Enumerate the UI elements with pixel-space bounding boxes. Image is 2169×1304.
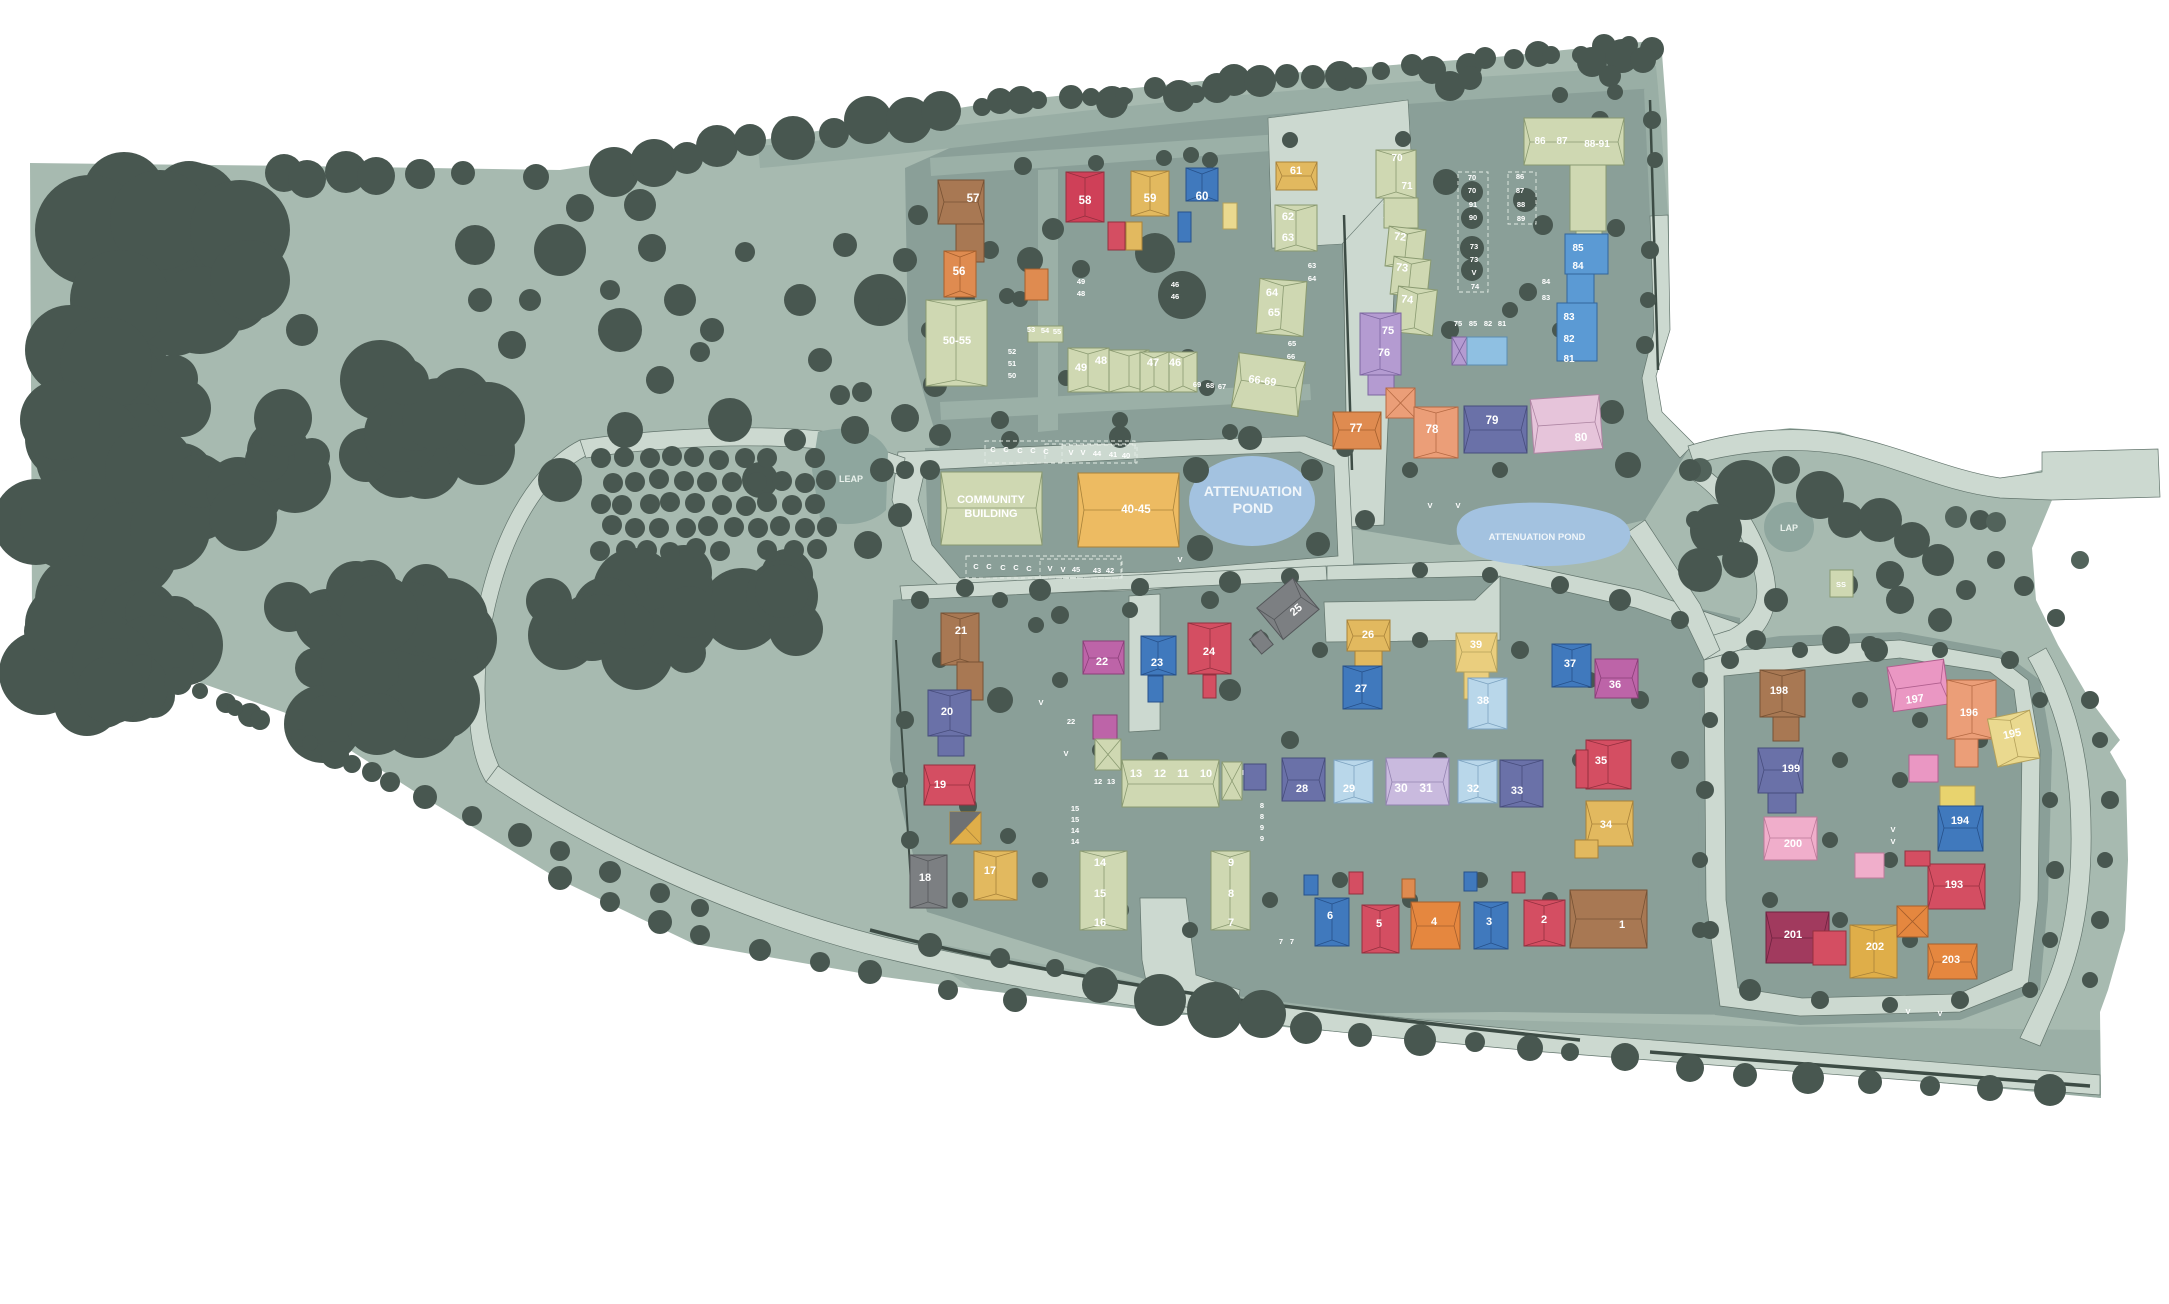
- svg-text:V: V: [1038, 698, 1043, 707]
- svg-text:8: 8: [1228, 888, 1234, 900]
- svg-text:C: C: [1026, 564, 1032, 573]
- svg-text:53: 53: [1027, 325, 1035, 334]
- svg-text:LEAP: LEAP: [839, 474, 863, 484]
- svg-text:COMMUNITY: COMMUNITY: [957, 494, 1025, 506]
- svg-text:78: 78: [1426, 424, 1439, 436]
- svg-text:36: 36: [1609, 679, 1621, 691]
- svg-text:70: 70: [1468, 173, 1476, 182]
- svg-text:V: V: [1427, 501, 1432, 510]
- svg-text:79: 79: [1486, 415, 1499, 427]
- svg-text:30: 30: [1394, 781, 1408, 795]
- svg-text:65: 65: [1268, 307, 1280, 319]
- svg-text:V: V: [1060, 565, 1065, 574]
- svg-text:V: V: [1177, 555, 1182, 564]
- svg-text:34: 34: [1600, 819, 1613, 831]
- svg-text:63: 63: [1282, 232, 1294, 244]
- svg-text:62: 62: [1282, 211, 1294, 223]
- svg-text:20: 20: [941, 706, 953, 718]
- svg-text:7: 7: [1228, 917, 1234, 929]
- svg-text:POND: POND: [1233, 500, 1273, 516]
- svg-text:28: 28: [1296, 783, 1308, 795]
- svg-text:C: C: [1000, 563, 1006, 572]
- svg-text:73: 73: [1470, 255, 1478, 264]
- svg-text:201: 201: [1784, 929, 1802, 941]
- svg-text:88-91: 88-91: [1584, 139, 1610, 150]
- svg-text:73: 73: [1395, 261, 1408, 274]
- svg-text:37: 37: [1564, 658, 1576, 670]
- svg-text:48: 48: [1095, 355, 1107, 367]
- svg-text:24: 24: [1203, 646, 1216, 658]
- svg-text:199: 199: [1782, 763, 1800, 775]
- svg-text:71: 71: [1401, 181, 1413, 192]
- svg-text:203: 203: [1942, 954, 1960, 966]
- svg-text:65: 65: [1288, 339, 1296, 348]
- svg-text:V: V: [1905, 1007, 1910, 1016]
- svg-text:59: 59: [1144, 193, 1157, 205]
- svg-text:50-55: 50-55: [943, 335, 971, 347]
- svg-text:V: V: [1937, 1009, 1942, 1018]
- svg-text:C: C: [986, 562, 992, 571]
- svg-text:77: 77: [1350, 423, 1363, 435]
- svg-text:15: 15: [1071, 815, 1079, 824]
- svg-text:69: 69: [1193, 380, 1201, 389]
- svg-text:16: 16: [1094, 917, 1106, 929]
- svg-text:40-45: 40-45: [1121, 504, 1151, 516]
- svg-text:200: 200: [1784, 838, 1802, 850]
- svg-text:90: 90: [1469, 213, 1477, 222]
- svg-text:54: 54: [1041, 326, 1050, 335]
- svg-text:29: 29: [1343, 783, 1355, 795]
- svg-text:11: 11: [1177, 768, 1189, 780]
- svg-text:2: 2: [1541, 914, 1547, 926]
- svg-text:26: 26: [1362, 629, 1374, 641]
- svg-text:BUILDING: BUILDING: [964, 508, 1017, 520]
- svg-text:52: 52: [1008, 347, 1016, 356]
- svg-text:7: 7: [1279, 937, 1283, 946]
- svg-text:14: 14: [1094, 857, 1107, 869]
- svg-text:84: 84: [1572, 261, 1584, 272]
- svg-text:49: 49: [1077, 277, 1085, 286]
- svg-text:40: 40: [1122, 451, 1130, 460]
- svg-text:197: 197: [1905, 692, 1925, 706]
- svg-text:V: V: [1455, 501, 1460, 510]
- svg-text:50: 50: [1008, 371, 1016, 380]
- svg-text:SS: SS: [1836, 580, 1846, 589]
- svg-text:C: C: [1003, 445, 1009, 454]
- svg-text:63: 63: [1308, 261, 1316, 270]
- svg-text:196: 196: [1960, 707, 1978, 719]
- svg-text:35: 35: [1595, 755, 1607, 767]
- svg-text:13: 13: [1130, 768, 1142, 780]
- svg-text:9: 9: [1260, 834, 1264, 843]
- svg-text:83: 83: [1542, 293, 1550, 302]
- svg-text:49: 49: [1075, 362, 1087, 374]
- svg-text:68: 68: [1206, 381, 1214, 390]
- svg-text:57: 57: [967, 193, 980, 205]
- svg-text:202: 202: [1866, 941, 1884, 953]
- svg-text:ATTENUATION POND: ATTENUATION POND: [1489, 532, 1586, 543]
- svg-text:V: V: [1471, 268, 1476, 277]
- svg-text:72: 72: [1393, 231, 1406, 244]
- svg-text:8: 8: [1260, 801, 1264, 810]
- svg-text:15: 15: [1094, 888, 1106, 900]
- svg-text:22: 22: [1096, 656, 1108, 668]
- svg-text:C: C: [1030, 446, 1036, 455]
- svg-text:80: 80: [1574, 432, 1588, 445]
- svg-text:39: 39: [1470, 639, 1482, 651]
- svg-text:51: 51: [1008, 359, 1016, 368]
- svg-text:8: 8: [1260, 812, 1264, 821]
- svg-text:17: 17: [984, 865, 996, 877]
- svg-text:V: V: [1068, 448, 1073, 457]
- svg-text:23: 23: [1151, 657, 1163, 669]
- svg-text:85: 85: [1469, 319, 1477, 328]
- svg-text:64: 64: [1308, 274, 1317, 283]
- svg-text:33: 33: [1511, 785, 1523, 797]
- svg-text:41: 41: [1109, 450, 1117, 459]
- svg-text:38: 38: [1477, 695, 1489, 707]
- svg-text:42: 42: [1106, 566, 1114, 575]
- svg-text:193: 193: [1945, 879, 1963, 891]
- svg-text:18: 18: [919, 872, 931, 884]
- svg-text:3: 3: [1486, 916, 1492, 928]
- svg-text:9: 9: [1228, 857, 1234, 869]
- svg-text:12: 12: [1094, 777, 1102, 786]
- svg-text:58: 58: [1079, 195, 1092, 207]
- svg-text:22: 22: [1067, 717, 1075, 726]
- svg-text:70: 70: [1468, 186, 1476, 195]
- svg-text:45: 45: [1072, 565, 1080, 574]
- svg-text:67: 67: [1218, 382, 1226, 391]
- svg-text:84: 84: [1542, 277, 1551, 286]
- svg-text:V: V: [1890, 825, 1895, 834]
- svg-text:V: V: [1047, 564, 1052, 573]
- svg-text:C: C: [973, 562, 979, 571]
- svg-text:C: C: [990, 445, 996, 454]
- svg-text:75: 75: [1382, 325, 1394, 337]
- svg-text:13: 13: [1107, 777, 1115, 786]
- svg-text:5: 5: [1376, 918, 1382, 930]
- svg-text:70: 70: [1391, 153, 1403, 164]
- svg-text:88: 88: [1517, 200, 1525, 209]
- svg-text:4: 4: [1431, 916, 1438, 928]
- svg-text:60: 60: [1196, 191, 1209, 203]
- svg-text:6: 6: [1327, 910, 1333, 922]
- svg-text:14: 14: [1071, 837, 1080, 846]
- svg-text:C: C: [1017, 446, 1023, 455]
- svg-text:81: 81: [1563, 354, 1575, 365]
- svg-text:V: V: [1063, 749, 1068, 758]
- svg-text:83: 83: [1563, 312, 1575, 323]
- svg-text:10: 10: [1200, 768, 1212, 780]
- svg-text:61: 61: [1290, 165, 1302, 177]
- svg-text:56: 56: [953, 266, 966, 278]
- svg-text:46: 46: [1171, 292, 1179, 301]
- svg-text:LAP: LAP: [1780, 523, 1798, 533]
- svg-text:1: 1: [1619, 919, 1625, 931]
- svg-text:87: 87: [1516, 186, 1524, 195]
- svg-text:31: 31: [1419, 781, 1433, 795]
- svg-text:89: 89: [1517, 214, 1525, 223]
- svg-text:27: 27: [1355, 683, 1367, 695]
- svg-text:47: 47: [1147, 357, 1159, 369]
- svg-text:ATTENUATION: ATTENUATION: [1204, 483, 1302, 499]
- svg-text:32: 32: [1467, 783, 1479, 795]
- svg-text:86: 86: [1516, 172, 1524, 181]
- svg-text:9: 9: [1260, 823, 1264, 832]
- svg-text:15: 15: [1071, 804, 1079, 813]
- svg-text:46: 46: [1171, 280, 1179, 289]
- svg-text:82: 82: [1484, 319, 1492, 328]
- svg-text:81: 81: [1498, 319, 1506, 328]
- svg-text:46: 46: [1169, 357, 1181, 369]
- svg-text:19: 19: [934, 779, 946, 791]
- svg-text:66: 66: [1287, 352, 1295, 361]
- svg-text:198: 198: [1770, 685, 1788, 697]
- svg-text:194: 194: [1951, 815, 1970, 827]
- svg-text:14: 14: [1071, 826, 1080, 835]
- svg-text:43: 43: [1093, 566, 1101, 575]
- svg-text:55: 55: [1053, 327, 1061, 336]
- svg-text:75: 75: [1454, 319, 1462, 328]
- svg-text:7: 7: [1290, 937, 1294, 946]
- svg-text:82: 82: [1563, 334, 1575, 345]
- svg-text:44: 44: [1093, 449, 1102, 458]
- svg-text:74: 74: [1400, 293, 1414, 306]
- svg-text:V: V: [1890, 837, 1895, 846]
- svg-text:74: 74: [1471, 282, 1480, 291]
- svg-text:85: 85: [1572, 243, 1584, 254]
- svg-text:64: 64: [1266, 287, 1279, 299]
- svg-text:86: 86: [1534, 136, 1546, 147]
- svg-text:73: 73: [1470, 242, 1478, 251]
- svg-text:48: 48: [1077, 289, 1085, 298]
- svg-text:12: 12: [1154, 768, 1166, 780]
- svg-text:V: V: [1080, 448, 1085, 457]
- svg-text:21: 21: [955, 625, 967, 637]
- svg-text:91: 91: [1469, 200, 1477, 209]
- svg-text:C: C: [1013, 563, 1019, 572]
- svg-text:76: 76: [1378, 347, 1390, 359]
- svg-text:C: C: [1043, 447, 1049, 456]
- svg-text:87: 87: [1556, 136, 1568, 147]
